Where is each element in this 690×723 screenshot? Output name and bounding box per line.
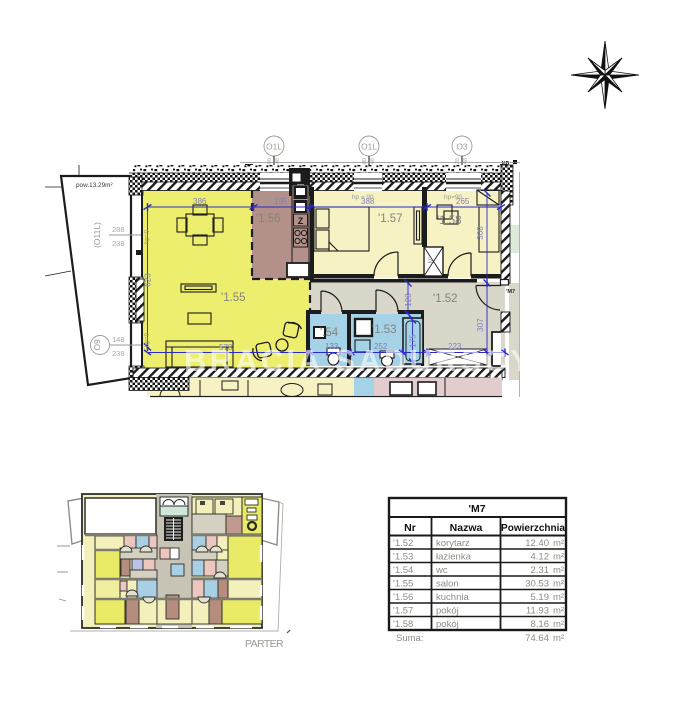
- svg-text:O9: O9: [92, 339, 102, 351]
- svg-text:m²: m²: [553, 538, 564, 549]
- svg-text:12.40: 12.40: [525, 538, 549, 549]
- svg-text:(O11L): (O11L): [92, 222, 102, 248]
- svg-text:11.93: 11.93: [526, 606, 549, 617]
- svg-text:'1.58: '1.58: [437, 215, 462, 227]
- svg-text:4.12: 4.12: [531, 552, 550, 563]
- svg-text:2.31: 2.31: [531, 565, 550, 576]
- svg-text:308: 308: [476, 226, 485, 240]
- svg-text:'1.57: '1.57: [378, 213, 403, 225]
- svg-text:Nazwa: Nazwa: [450, 522, 483, 534]
- svg-text:Suma:: Suma:: [396, 633, 423, 644]
- svg-text:O1L: O1L: [361, 142, 377, 152]
- svg-text:238: 238: [112, 239, 125, 248]
- svg-text:Powierzchnia: Powierzchnia: [501, 523, 565, 534]
- svg-text:łazienka: łazienka: [436, 552, 472, 563]
- svg-text:hp = 90: hp = 90: [352, 194, 374, 201]
- svg-text:238: 238: [112, 349, 125, 358]
- svg-text:salon: salon: [436, 579, 459, 590]
- svg-text:'1.58: '1.58: [393, 619, 413, 630]
- svg-text:'1.55: '1.55: [221, 292, 246, 304]
- svg-text:'1.52: '1.52: [393, 538, 413, 549]
- svg-text:m²: m²: [553, 552, 564, 563]
- svg-text:m²: m²: [553, 633, 564, 644]
- svg-text:m²: m²: [553, 565, 564, 576]
- svg-text:'1.53: '1.53: [393, 552, 413, 563]
- svg-text:m²: m²: [553, 579, 564, 590]
- svg-text:korytarz: korytarz: [436, 538, 470, 549]
- svg-text:30.53: 30.53: [525, 579, 549, 590]
- svg-text:O3: O3: [456, 142, 468, 152]
- svg-text:'M7: 'M7: [506, 289, 515, 295]
- svg-text:Z: Z: [298, 216, 304, 226]
- svg-text:'1.53: '1.53: [372, 324, 397, 336]
- svg-text:'.54: '.54: [320, 327, 339, 339]
- svg-text:'1.52: '1.52: [433, 293, 458, 305]
- svg-text:BRACIA SADURSCY: BRACIA SADURSCY: [184, 343, 534, 378]
- svg-text:'1.56: '1.56: [256, 213, 281, 225]
- svg-text:hp=90: hp=90: [444, 194, 462, 201]
- svg-text:kp: kp: [427, 256, 434, 263]
- svg-text:'1.57: '1.57: [393, 606, 413, 617]
- svg-text:m²: m²: [553, 592, 564, 603]
- svg-text:'1.56: '1.56: [393, 592, 413, 603]
- svg-text:'1.55: '1.55: [393, 579, 413, 590]
- svg-text:hp=90: hp=90: [262, 196, 280, 203]
- svg-text:pokój: pokój: [436, 606, 459, 617]
- svg-text:8.16: 8.16: [531, 619, 550, 630]
- svg-text:386: 386: [193, 197, 207, 206]
- svg-text:123: 123: [404, 293, 413, 307]
- svg-text:5.19: 5.19: [531, 592, 550, 603]
- svg-text:kuchnia: kuchnia: [436, 592, 469, 603]
- svg-text:pokój: pokój: [436, 619, 459, 630]
- svg-text:Nr: Nr: [404, 522, 416, 534]
- svg-text:PARTER: PARTER: [245, 638, 284, 650]
- svg-text:74.64: 74.64: [525, 633, 549, 644]
- svg-text:hp=0: hp=0: [144, 229, 151, 244]
- svg-text:623: 623: [144, 273, 153, 287]
- svg-text:pow.13.29m²: pow.13.29m²: [76, 182, 113, 189]
- svg-text:288: 288: [112, 225, 125, 234]
- svg-text:m²: m²: [553, 619, 564, 630]
- svg-text:O1L: O1L: [266, 142, 282, 152]
- svg-text:'1.54: '1.54: [393, 565, 413, 576]
- svg-text:hp=0: hp=0: [144, 332, 151, 347]
- svg-text:307: 307: [476, 318, 485, 332]
- svg-text:m²: m²: [553, 606, 564, 617]
- svg-text:'M7: 'M7: [468, 503, 485, 515]
- svg-text:wc: wc: [435, 565, 448, 576]
- svg-text:148: 148: [112, 335, 125, 344]
